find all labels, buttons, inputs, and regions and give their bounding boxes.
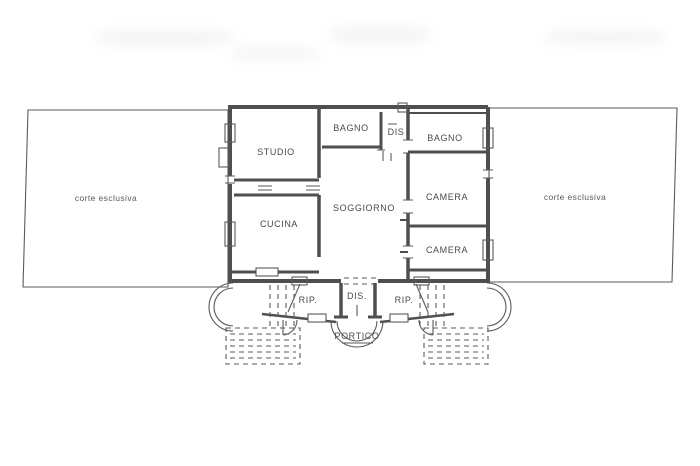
room-label-dis-top: DIS [388,127,405,137]
room-label-cucina: CUCINA [260,219,298,229]
room-label-soggiorno: SOGGIORNO [333,203,395,213]
room-label-rip-left: RIP. [299,295,318,305]
room-label-dis-bottom: DIS. [347,291,367,301]
floor-plan-svg: corte esclusiva corte esclusiva STUDIO B… [0,0,700,466]
courtyard-label-right: corte esclusiva [544,192,606,202]
room-label-camera-mid: CAMERA [426,192,468,202]
room-label-studio: STUDIO [257,147,295,157]
room-label-bagno-top: BAGNO [333,123,369,133]
room-label-camera-low: CAMERA [426,245,468,255]
courtyard-label-left: corte esclusiva [75,193,137,203]
room-label-bagno-right: BAGNO [427,133,463,143]
room-label-rip-right: RIP. [395,295,414,305]
room-label-portico: PORTICO [334,331,379,341]
floor-plan-page: corte esclusiva corte esclusiva STUDIO B… [0,0,700,466]
